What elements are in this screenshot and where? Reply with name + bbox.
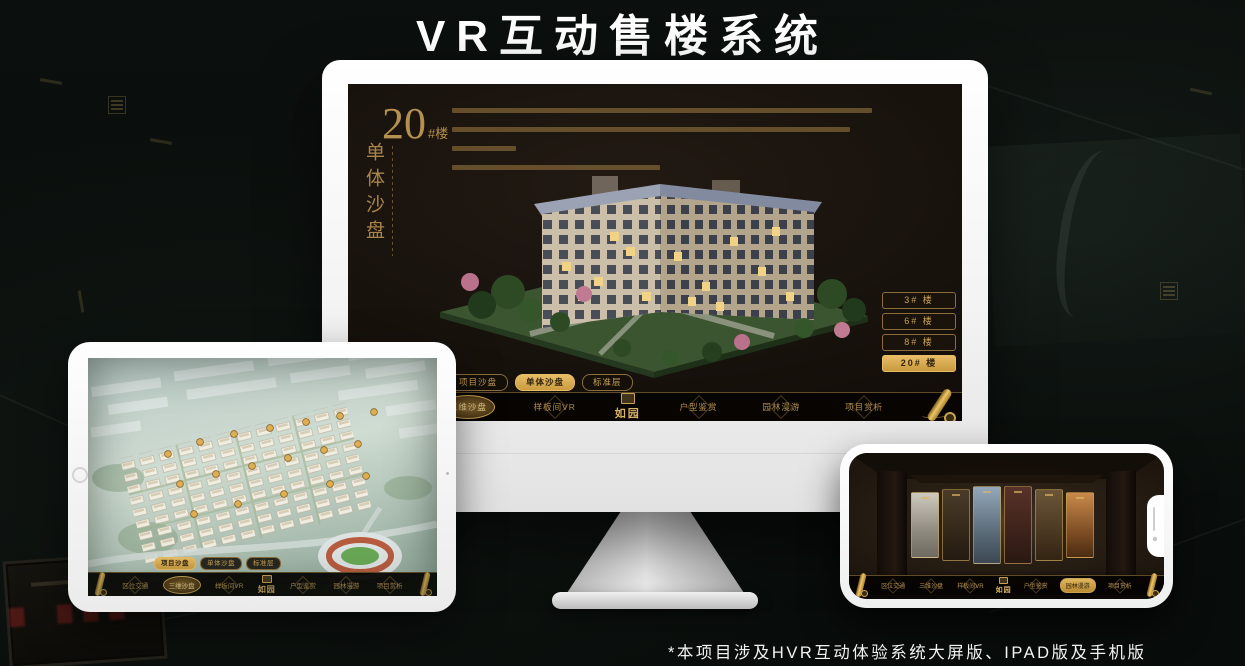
- menu-garden-roam[interactable]: 园林漫游: [756, 398, 806, 416]
- scene-roof-beam: [909, 475, 1104, 483]
- gallery-card[interactable]: [911, 492, 939, 558]
- menu-3d-sandtable[interactable]: 三维沙盘: [917, 579, 945, 592]
- seal-icon: [999, 577, 1008, 584]
- tablet-main-menu: 区位交通 三维沙盘 样板间VR 如园 户型鉴赏 园林漫游 项目赏析: [88, 572, 437, 596]
- brand-logo: 如园: [996, 577, 1012, 595]
- gallery-card[interactable]: [1066, 492, 1094, 558]
- building-label: 20#楼: [382, 102, 448, 146]
- menu-location-transport[interactable]: 区位交通: [119, 578, 151, 592]
- scroll-handle-icon[interactable]: [853, 575, 869, 597]
- tablet-home-button[interactable]: [72, 467, 88, 483]
- floor-button-group: 3# 楼 6# 楼 8# 楼 20# 楼: [882, 292, 956, 372]
- scroll-handle-icon[interactable]: [92, 574, 108, 596]
- floor-button-8[interactable]: 8# 楼: [882, 334, 956, 351]
- menu-unit-appreciation[interactable]: 户型鉴赏: [674, 398, 724, 416]
- poster-canvas: VR互动售楼系统 20#楼 单体沙盘: [0, 0, 1245, 666]
- background-map-marker-icon: [1160, 282, 1178, 300]
- subtab-standard-floor[interactable]: 标准层: [582, 374, 633, 391]
- menu-project-showcase[interactable]: 项目赏析: [839, 398, 889, 416]
- subtab-single-sandtable-active[interactable]: 单体沙盘: [515, 374, 575, 391]
- phone-screen: 区位交通 三维沙盘 样板间VR 如园 户型鉴赏 园林漫游 项目赏析: [849, 453, 1164, 599]
- menu-project-showcase[interactable]: 项目赏析: [1106, 579, 1134, 592]
- menu-unit-appreciation[interactable]: 户型鉴赏: [1022, 579, 1050, 592]
- brand-logo-text: 如园: [615, 405, 641, 421]
- menu-project-showcase[interactable]: 项目赏析: [374, 578, 406, 592]
- building-subtitle: 单体沙盘: [360, 142, 387, 246]
- footnote-text: *本项目涉及HVR互动体验系统大屏版、IPAD版及手机版: [668, 639, 1147, 663]
- tablet-subtab-standard-floor[interactable]: 标准层: [246, 557, 281, 570]
- gallery-carousel: [911, 486, 1094, 564]
- menu-showroom-vr[interactable]: 样板间VR: [955, 579, 985, 592]
- seal-icon: [621, 393, 635, 404]
- tablet-screen: 项目沙盘 单体沙盘 标准层 区位交通 三维沙盘 样板间VR 如园 户型鉴赏 园林…: [88, 358, 437, 596]
- phone-notch: [1147, 495, 1164, 557]
- floor-button-6[interactable]: 6# 楼: [882, 313, 956, 330]
- gallery-card[interactable]: [1035, 489, 1063, 561]
- scroll-handle-icon[interactable]: [1144, 575, 1160, 597]
- menu-garden-roam[interactable]: 园林漫游: [330, 578, 362, 592]
- background-map-marker-icon: [108, 96, 126, 114]
- gallery-card[interactable]: [942, 489, 970, 561]
- label-divider: [392, 146, 393, 256]
- gallery-card[interactable]: [1004, 486, 1032, 564]
- tablet-subtab-project-sandtable-active[interactable]: 项目沙盘: [154, 557, 196, 570]
- gallery-card[interactable]: [973, 486, 1001, 564]
- tablet-subtab-single-sandtable[interactable]: 单体沙盘: [200, 557, 242, 570]
- floor-button-3[interactable]: 3# 楼: [882, 292, 956, 309]
- phone-speaker: [1153, 507, 1155, 531]
- tablet-camera-dot: [446, 472, 449, 475]
- building-number-suffix: #楼: [428, 126, 448, 141]
- menu-showroom-vr[interactable]: 样板间VR: [528, 398, 582, 416]
- building-number: 20: [382, 99, 426, 148]
- subtab-project-sandtable[interactable]: 项目沙盘: [448, 374, 508, 391]
- menu-location-transport[interactable]: 区位交通: [879, 579, 907, 592]
- tablet-device: 项目沙盘 单体沙盘 标准层 区位交通 三维沙盘 样板间VR 如园 户型鉴赏 园林…: [68, 342, 456, 612]
- phone-camera: [1153, 537, 1157, 541]
- scroll-handle-icon[interactable]: [417, 574, 433, 596]
- floor-button-20-active[interactable]: 20# 楼: [882, 355, 956, 372]
- tablet-sandtable-subtabs: 项目沙盘 单体沙盘 标准层: [154, 557, 281, 570]
- brand-logo-text: 如园: [258, 584, 276, 595]
- brand-logo: 如园: [258, 575, 276, 595]
- sandtable-subtabs: 项目沙盘 单体沙盘 标准层: [448, 374, 633, 391]
- phone-device: 区位交通 三维沙盘 样板间VR 如园 户型鉴赏 园林漫游 项目赏析: [840, 444, 1173, 608]
- menu-garden-roam-active[interactable]: 园林漫游: [1060, 578, 1096, 593]
- building-model-image: [412, 142, 892, 378]
- menu-showroom-vr[interactable]: 样板间VR: [212, 578, 247, 592]
- menu-unit-appreciation[interactable]: 户型鉴赏: [287, 578, 319, 592]
- seal-icon: [262, 575, 272, 583]
- menu-3d-sandtable-active[interactable]: 三维沙盘: [163, 576, 201, 594]
- scene-pillar: [1106, 470, 1136, 582]
- brand-logo: 如园: [615, 393, 641, 421]
- phone-main-menu: 区位交通 三维沙盘 样板间VR 如园 户型鉴赏 园林漫游 项目赏析: [849, 575, 1164, 595]
- page-title: VR互动售楼系统: [0, 0, 1245, 64]
- brand-logo-text: 如园: [996, 585, 1012, 595]
- scene-pillar: [877, 470, 907, 582]
- scroll-handle-icon[interactable]: [922, 390, 956, 421]
- monitor-base: [552, 592, 758, 609]
